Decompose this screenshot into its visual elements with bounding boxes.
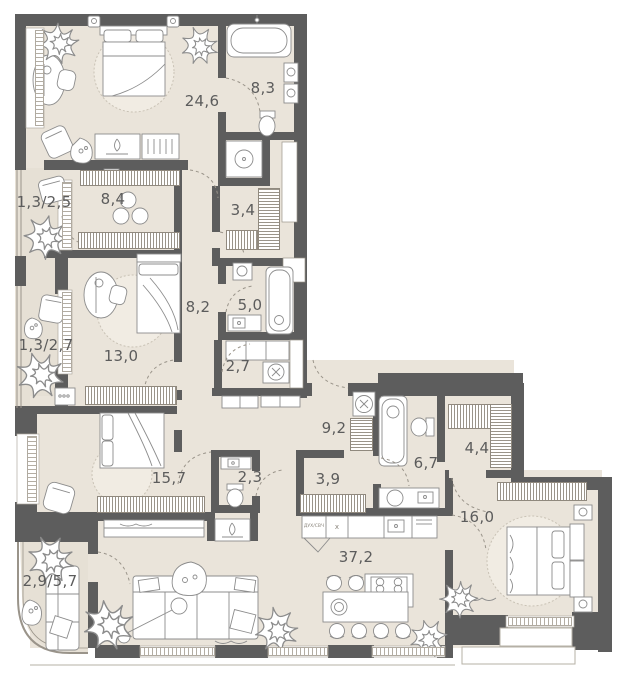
room-label-balcony-3: 2,9/5,7 xyxy=(23,572,78,590)
room-label-balcony-1: 1,3/2,5 xyxy=(17,193,72,211)
window xyxy=(140,647,215,656)
floorplan-page: 24,6 8,3 1,3/2,5 8,4 3,4 8,2 5,0 1,3/2,7… xyxy=(0,0,626,700)
chair xyxy=(352,624,367,639)
window xyxy=(372,647,445,656)
wardrobe-shelving xyxy=(350,418,373,451)
pillow xyxy=(552,531,564,558)
dining-table xyxy=(323,592,408,622)
nightstand xyxy=(574,505,592,520)
oven-label: ДУХ/СВЧ xyxy=(303,517,325,537)
floor-lamp xyxy=(171,598,187,614)
room-label-bathroom-2: 5,0 xyxy=(238,296,263,314)
chair xyxy=(396,624,411,639)
room-label-living-kitchen: 37,2 xyxy=(339,548,374,566)
fireplace xyxy=(95,134,140,159)
cushion xyxy=(234,578,255,593)
wardrobe-shelving xyxy=(80,170,180,186)
wardrobe-shelving xyxy=(448,404,492,429)
wardrobe-shelving xyxy=(300,494,366,513)
bed-headboard xyxy=(570,524,584,560)
window xyxy=(35,30,44,126)
pouf xyxy=(113,208,129,224)
room-label-master-bedroom: 24,6 xyxy=(185,92,220,110)
hob-label: x xyxy=(326,517,348,537)
window xyxy=(268,647,328,656)
pillow xyxy=(139,264,178,275)
room-label-bathroom-3: 6,7 xyxy=(414,454,439,472)
room-label-master-bathroom: 8,3 xyxy=(251,79,276,97)
chair xyxy=(349,576,364,591)
room-label-balcony-2: 1,3/2,7 xyxy=(19,336,74,354)
window xyxy=(62,182,72,248)
window xyxy=(508,617,572,626)
wardrobe-shelving xyxy=(85,386,177,405)
floorplan-drawing xyxy=(0,0,626,700)
wardrobe-shelving xyxy=(490,404,512,468)
room-label-laundry: 2,7 xyxy=(226,357,251,375)
window xyxy=(27,436,37,502)
cushion xyxy=(138,578,159,593)
wardrobe-shelving xyxy=(226,230,258,250)
wardrobe-shelving xyxy=(97,496,205,513)
washbasin xyxy=(284,84,298,103)
bathtub xyxy=(266,267,293,334)
bed-headboard xyxy=(137,254,181,262)
pillow xyxy=(136,30,163,42)
room-label-wardrobe-2: 4,4 xyxy=(465,439,490,457)
tv-console xyxy=(104,520,204,537)
room-label-entry-hall: 9,2 xyxy=(322,419,347,437)
wardrobe-shelving xyxy=(258,188,280,250)
pillow xyxy=(102,441,113,466)
nightstand xyxy=(574,597,592,612)
wardrobe-shelving xyxy=(78,232,180,249)
chair xyxy=(330,624,345,639)
fireplace xyxy=(215,519,250,541)
pillow xyxy=(104,30,131,42)
bathtub xyxy=(227,24,291,57)
washbasin xyxy=(284,63,298,82)
pillow xyxy=(552,562,564,589)
room-label-wardrobe-1: 8,4 xyxy=(101,190,126,208)
room-label-wc: 2,3 xyxy=(238,468,263,486)
room-label-corridor: 8,2 xyxy=(186,298,211,316)
room-label-closet-1: 3,4 xyxy=(231,201,256,219)
wardrobe-shelving xyxy=(497,482,587,501)
pillow xyxy=(102,415,113,440)
room-label-bedroom-3: 15,7 xyxy=(152,469,187,487)
room-label-bedroom-4: 16,0 xyxy=(460,508,495,526)
room-label-bedroom-2: 13,0 xyxy=(104,347,139,365)
pouf xyxy=(132,208,148,224)
bed-headboard xyxy=(570,561,584,597)
cabinet xyxy=(261,396,300,407)
chair xyxy=(374,624,389,639)
washbasin xyxy=(233,263,252,280)
room-label-closet-2: 3,9 xyxy=(316,470,341,488)
chair xyxy=(327,576,342,591)
bathtub xyxy=(379,396,407,466)
window xyxy=(62,292,72,372)
